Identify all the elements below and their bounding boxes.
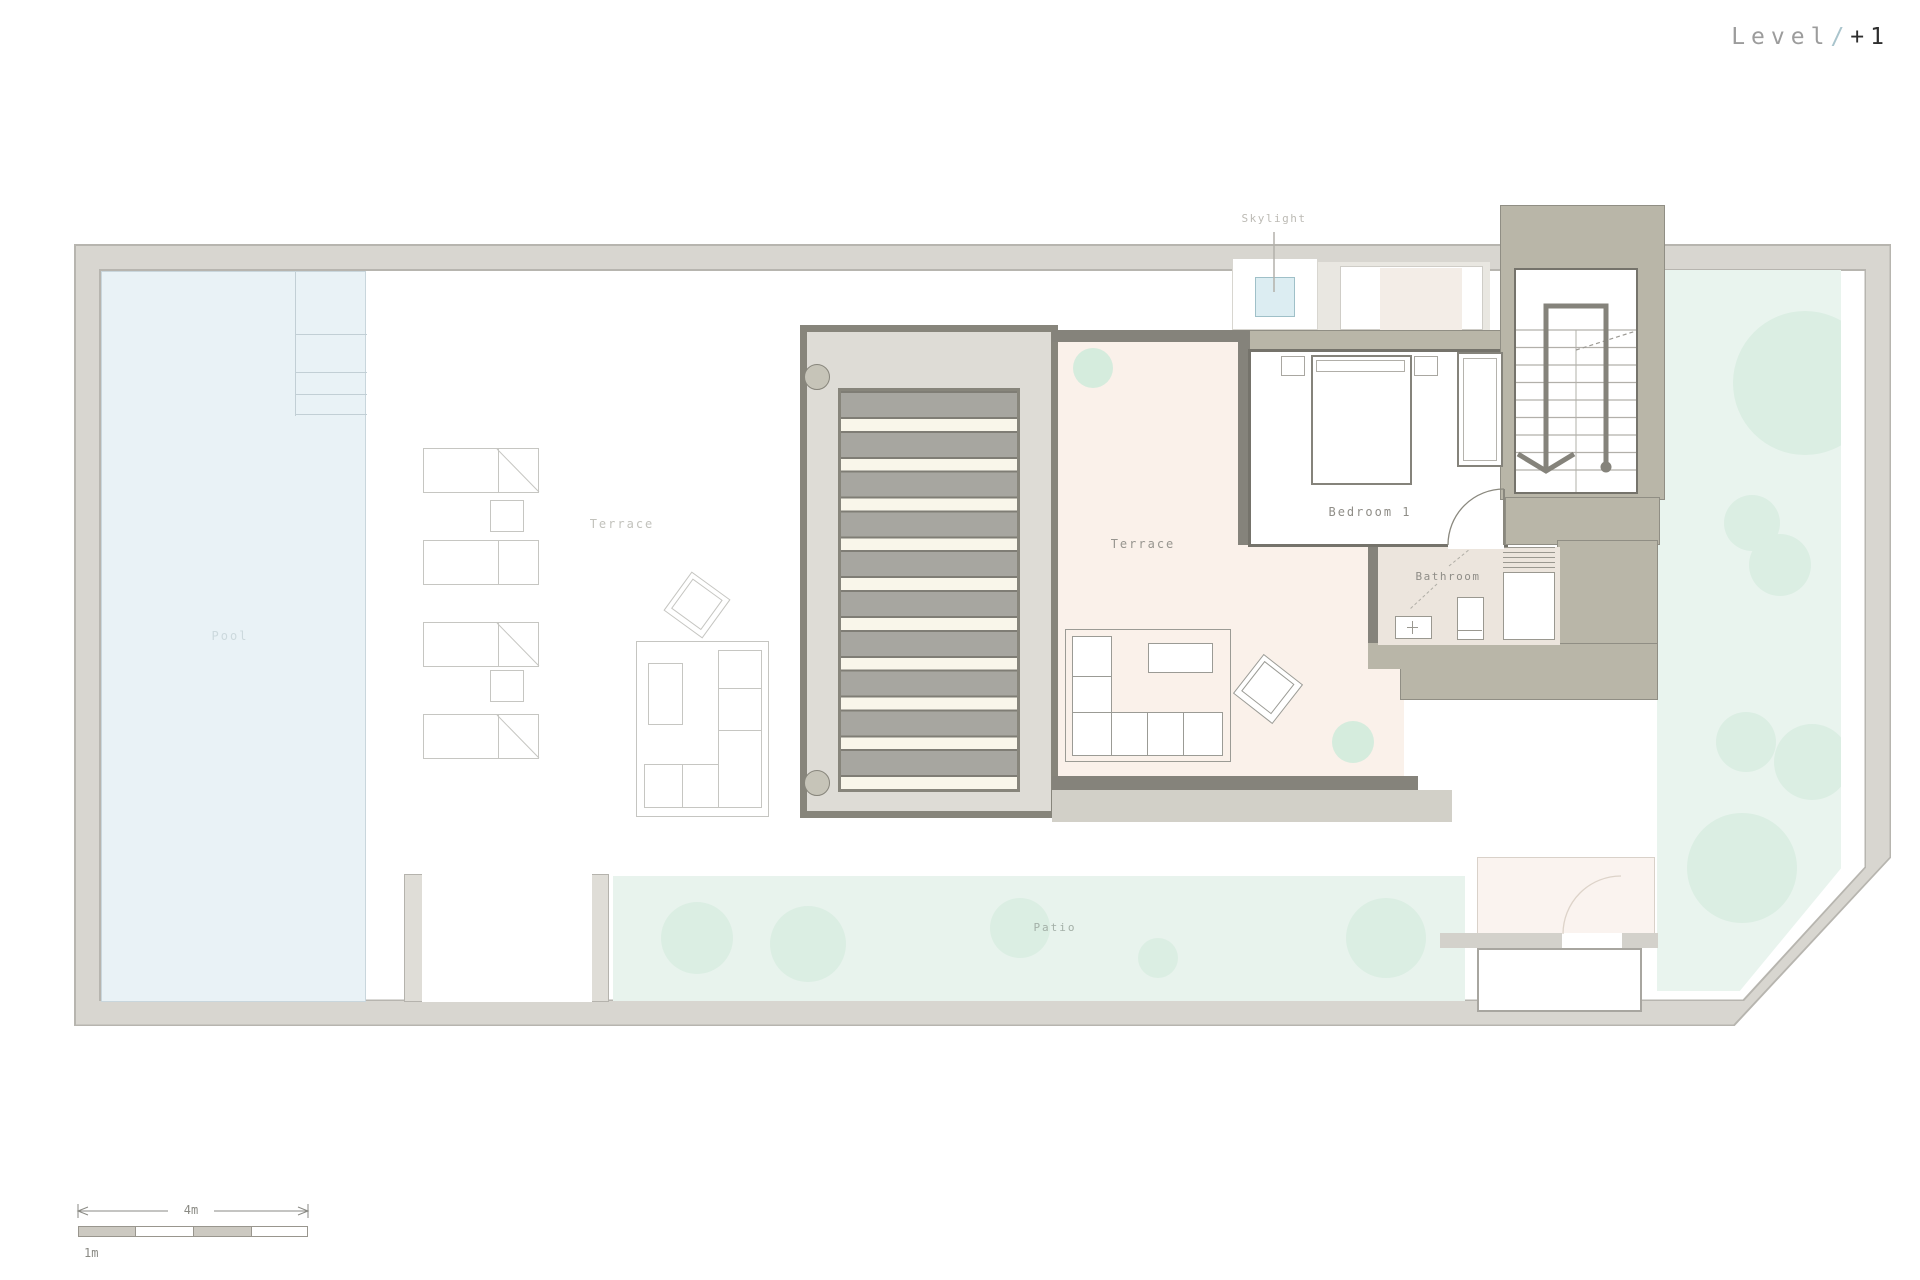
plant-circle [1332, 721, 1374, 763]
terrace-south-band [1052, 790, 1452, 822]
level-title-separator: / [1830, 24, 1850, 50]
sofa-horizontal-arm [1111, 712, 1223, 756]
tree-circle [661, 902, 733, 974]
shower-lines [1503, 547, 1555, 569]
pool-label: Pool [145, 629, 315, 643]
pergola-column [804, 770, 830, 796]
scale-bar-segment [136, 1227, 194, 1236]
pergola-column [804, 364, 830, 390]
scale-bar-segment [194, 1227, 252, 1236]
exterior-stair-inner [422, 874, 592, 1002]
side-table [490, 500, 524, 532]
wall-band-bathroom-south [1400, 643, 1658, 700]
side-table [490, 670, 524, 702]
tree-circle [1774, 724, 1841, 800]
wall-band-bathroom-west-corner [1368, 643, 1402, 669]
level-title-word: Level [1731, 24, 1830, 50]
sun-lounger [423, 540, 539, 585]
skylight-window [1255, 277, 1295, 317]
wall-band-east-upper [1505, 497, 1660, 545]
sun-lounger [423, 714, 539, 759]
scale-total-label: 4m [168, 1203, 214, 1217]
sofa-vertical-arm [1072, 636, 1112, 756]
entry-wall-band [1440, 933, 1658, 948]
wall-terrace-north [1052, 330, 1258, 342]
bedroom-label: Bedroom 1 [1285, 505, 1455, 519]
tree-circle [1687, 813, 1797, 923]
terrace-outdoor-label: Terrace [537, 517, 707, 531]
bed [1311, 355, 1412, 485]
nightstand [1414, 356, 1438, 376]
lower-room [1477, 948, 1642, 1012]
tree-circle [1716, 712, 1776, 772]
stair-interior [1514, 268, 1638, 494]
wall-terrace-south [1052, 776, 1418, 790]
bed-headboard [1316, 360, 1405, 372]
level-title: Level/+1 [1560, 24, 1890, 50]
sun-lounger [423, 448, 539, 493]
scale-bar-segment [252, 1227, 307, 1236]
garden [1657, 270, 1841, 991]
skylight-label: Skylight [1189, 212, 1359, 225]
pergola-slat-panel [838, 388, 1020, 792]
entry-room [1477, 857, 1655, 935]
patio [613, 876, 1465, 1001]
sun-lounger [423, 622, 539, 667]
tree-circle [1138, 938, 1178, 978]
scale-bar [78, 1226, 308, 1237]
entry-door-gap [1562, 933, 1622, 948]
nightstand [1281, 356, 1305, 376]
terrace-indoor-label: Terrace [1058, 537, 1228, 551]
floor-plan-canvas: 4m 1m Pool Terrace Terrace Bedroom 1 Bat… [0, 0, 1920, 1280]
level-title-number: +1 [1850, 24, 1890, 50]
scale-bar-segment [79, 1227, 136, 1236]
bathroom-label: Bathroom [1363, 570, 1533, 583]
toilet [1457, 597, 1484, 640]
tree-circle [1733, 311, 1841, 455]
patio-label: Patio [970, 921, 1140, 934]
wall-band-east [1557, 540, 1658, 650]
tree-circle [770, 906, 846, 982]
tree-circle [1346, 898, 1426, 978]
wardrobe [1457, 352, 1503, 467]
pool-steps [295, 272, 366, 416]
plant-circle [1073, 348, 1113, 388]
coffee-table [1148, 643, 1213, 673]
scale-unit-label: 1m [84, 1246, 124, 1260]
bedroom-door-gap [1448, 541, 1504, 549]
sink [1395, 616, 1432, 639]
deck-sofa-vertical [718, 650, 762, 808]
bedroom-north-room-inner [1380, 268, 1462, 330]
tree-circle [1749, 534, 1811, 596]
